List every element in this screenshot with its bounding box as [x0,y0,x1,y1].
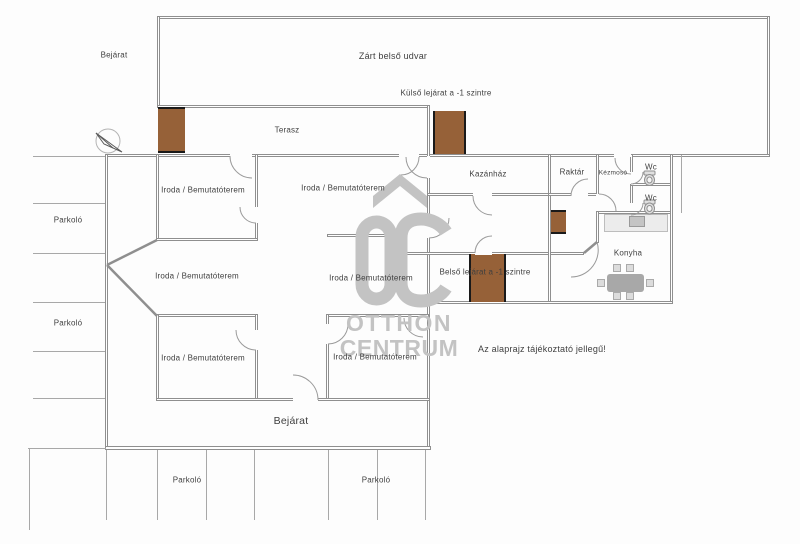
door-arc [571,242,598,277]
internal-stairs-block [469,254,506,302]
small-stair-block [551,210,566,234]
label-handwash: Kézmosó [599,170,628,177]
door-arc [401,157,419,175]
chair [613,264,621,272]
wall [157,16,160,107]
label-office-5: Iroda / Bemutatóterem [161,354,245,363]
wall [327,234,388,237]
bay-wall [107,265,157,316]
wall [157,105,430,108]
wall [156,314,258,317]
label-wc-2: Wc [645,194,657,203]
north-arrow [96,129,122,153]
floor-plan: OTTHON CENTRUM Bejárat Zárt belső udvar … [0,0,800,544]
door-opening [427,156,430,178]
door-arc [473,196,492,215]
parking-line [254,450,255,520]
parking-line [33,156,105,157]
wall [156,238,258,241]
door-arc [236,330,256,350]
chair [646,279,654,287]
label-storage: Raktár [560,168,585,177]
label-parking-3: Parkoló [173,476,202,485]
label-parking-2: Parkoló [54,319,83,328]
parking-line [377,450,378,520]
wall [105,154,108,450]
label-office-4: Iroda / Bemutatóterem [329,274,413,283]
bay-wall [107,240,157,265]
wall [767,16,770,157]
door-opening [255,330,258,350]
wall [255,154,258,240]
label-entrance-top: Bejárat [101,51,128,60]
wall [326,314,429,317]
label-internal-stairs: Belső lejárat a -1 szintre [439,268,530,277]
parking-line [106,450,107,520]
label-wc-1: Wc [645,163,657,172]
door-opening [293,398,318,401]
label-disclaimer: Az alaprajz tájékoztató jellegű! [478,344,606,354]
label-external-stairs: Külső lejárat a -1 szintre [400,89,491,98]
label-office-1: Iroda / Bemutatóterem [161,186,245,195]
label-office-6: Iroda / Bemutatóterem [333,353,417,362]
terrace-stair-block [158,107,185,153]
wall [255,314,258,401]
door-arc [404,318,423,337]
door-opening [614,154,631,157]
door-opening [571,193,588,196]
parking-line [33,351,105,352]
door-opening [427,218,430,238]
toilet-icon [644,171,655,175]
parking-line [33,398,105,399]
parking-line [425,450,426,520]
external-stairs-block [433,111,466,154]
door-opening [230,154,252,157]
label-entrance-bottom: Bejárat [274,415,309,427]
chair [626,264,634,272]
door-arc [240,207,256,223]
wall [630,183,673,186]
door-opening [475,252,492,255]
door-opening [596,194,599,211]
toilet-icons [644,171,655,214]
door-arc [429,218,449,238]
door-arc [406,157,427,178]
outer-edge-line [681,155,682,213]
parking-line [33,253,105,254]
kitchen-table [607,274,644,292]
wall [156,154,159,240]
parking-line [28,448,106,449]
chamfer-wall [584,242,597,253]
wall [105,446,431,450]
parking-line [33,203,105,204]
label-office-2: Iroda / Bemutatóterem [301,184,385,193]
door-arc [599,194,616,211]
door-arc [230,156,252,178]
plan-graphics: OTTHON CENTRUM [0,0,800,544]
parking-line [328,450,329,520]
chair [597,279,605,287]
door-opening [399,154,419,157]
wall [156,314,159,401]
door-opening [255,207,258,223]
label-courtyard: Zárt belső udvar [359,51,427,61]
parking-line [33,302,105,303]
parking-line [29,449,30,530]
door-arc [328,324,348,344]
wall [157,16,770,19]
door-arc [475,236,492,253]
door-opening [630,172,633,184]
chair [613,292,621,300]
label-parking-4: Parkoló [362,476,391,485]
door-arc [293,375,318,400]
parking-line [157,450,158,520]
label-office-3: Iroda / Bemutatóterem [155,272,239,281]
label-parking-1: Parkoló [54,216,83,225]
label-boiler-room: Kazánház [469,170,506,179]
wall [596,211,599,243]
door-opening [326,324,329,344]
door-opening [630,203,633,211]
label-kitchen: Konyha [614,249,642,258]
parking-line [206,450,207,520]
kitchen-sink [629,216,645,227]
chair [626,292,634,300]
wall [427,301,673,304]
label-terrace: Terasz [275,126,300,135]
wall [670,154,673,304]
watermark-letter-c [401,219,446,301]
door-opening [473,193,492,196]
